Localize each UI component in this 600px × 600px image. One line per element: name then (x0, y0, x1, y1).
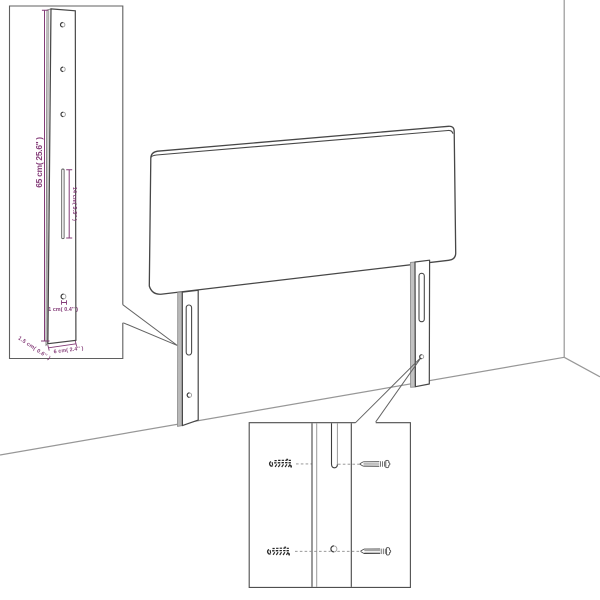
svg-text:14 cm( 5.5'' ): 14 cm( 5.5'' ) (71, 187, 77, 221)
svg-text:1 cm( 0.4'' ): 1 cm( 0.4'' ) (48, 307, 78, 313)
svg-text:65 cm( 25.6'' ): 65 cm( 25.6'' ) (34, 137, 44, 188)
